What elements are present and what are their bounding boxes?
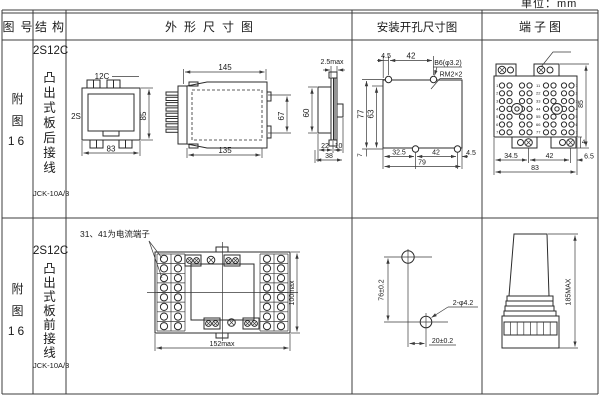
row1-model: 2S12C [33, 45, 66, 57]
dim-label-60: 60 [302, 108, 311, 117]
dim-label-100max: 100max [289, 280, 296, 305]
dim-label-185max: 185MAX [566, 278, 573, 305]
dim-label-42-bottom: 42 [432, 150, 440, 157]
dim-label-2-5max: 2.5max [321, 59, 344, 66]
row1-terminal-diagram: 1 2 3 4 5 6 7 11 22 33 44 55 66 77 1 2 3… [494, 52, 594, 175]
dim-label-32-5: 32.5 [392, 150, 406, 157]
term-num: 11 [536, 83, 541, 88]
row2-mounting-hole-drawing: 76±0.2 20±0.2 2-φ4.2 [379, 249, 479, 347]
term-num: 22 [536, 91, 541, 96]
dim-label-67: 67 [277, 111, 286, 120]
dim-label-22: 22 [321, 143, 329, 150]
label-2s: 2S [71, 112, 81, 121]
dim-label-77: 77 [357, 109, 366, 118]
dim-label-83-term: 83 [531, 165, 539, 172]
dim-label-42-term: 42 [546, 153, 554, 160]
dim-label-63: 63 [367, 109, 376, 118]
callout-rm2: RM2×2 [440, 72, 463, 79]
dim-label-79: 79 [418, 160, 426, 167]
dim-label-4-5-bottom: 4.5 [466, 150, 476, 157]
term-num: 5 [575, 114, 578, 119]
dim-label-38: 38 [325, 153, 333, 160]
row2-fig-char-1: 附 [4, 280, 31, 297]
term-num: 1 [575, 83, 578, 88]
row2-structure-desc: 凸出式板前接线 [41, 262, 58, 360]
row1-fig-char-2: 图 [4, 112, 31, 129]
dim-label-42-top: 42 [407, 52, 416, 61]
term-num: 33 [536, 99, 541, 104]
term-num: 7 [575, 130, 578, 135]
row2-type-code: JCK-10A/3 [33, 361, 66, 370]
dim-label-4-term: 4 [582, 140, 586, 146]
term-num: 7 [496, 130, 499, 135]
dim-label-83: 83 [107, 145, 116, 154]
dim-label-34-5: 34.5 [504, 153, 518, 160]
callout-2-phi4-2: 2-φ4.2 [453, 300, 474, 307]
row2-side-profile-drawing: 185MAX [502, 234, 578, 348]
row1-type-code: JCK-10A/3 [33, 189, 66, 198]
term-num: 2 [575, 91, 578, 96]
row1-structure-desc: 凸出式板后接线 [41, 71, 58, 176]
header-mounting-dims: 安装开孔尺寸图 [352, 13, 482, 40]
dim-label-10: 10 [335, 143, 343, 150]
row2-front-wiring-drawing: 152max 100max [147, 241, 300, 351]
term-num: 6 [496, 122, 499, 127]
unit-label: 单位：mm [521, 0, 577, 11]
dim-label-135: 135 [218, 146, 232, 155]
term-num: 2 [496, 91, 499, 96]
row1-mounting-hole-drawing: 4.5 42 B6(φ3.2) RM2×2 77 63 7 32.5 42 4.… [357, 52, 476, 170]
row2-current-terminal-note: 31、41为电流端子 [80, 228, 150, 240]
header-outline-dims: 外形尺寸图 [66, 13, 352, 40]
row1-front-view-drawing: 12C 2S 85 83 [71, 72, 153, 156]
term-num: 5 [496, 114, 499, 119]
term-num: 1 [496, 83, 499, 88]
dim-label-6-5: 6.5 [584, 154, 594, 161]
dim-label-12c: 12C [95, 72, 110, 81]
dim-label-20: 20±0.2 [432, 338, 453, 345]
dim-label-152max: 152max [210, 341, 235, 348]
term-num: 55 [536, 114, 541, 119]
dim-label-76: 76±0.2 [379, 279, 386, 300]
header-structure: 结构 [33, 13, 66, 40]
row1-fig-number: 16 [4, 134, 31, 148]
header-fig-no: 图号 [2, 13, 33, 40]
row1-fig-char-1: 附 [4, 90, 31, 107]
dim-label-145: 145 [218, 63, 232, 72]
row2-fig-char-2: 图 [4, 302, 31, 319]
header-terminal-diagram: 端子图 [482, 13, 598, 40]
row2-model: 2S12C [33, 245, 66, 257]
technical-drawing-canvas: 12C 2S 85 83 145 135 67 [0, 0, 600, 400]
manual-page: 12C 2S 85 83 145 135 67 [0, 0, 600, 400]
callout-b6: B6(φ3.2) [434, 60, 462, 67]
term-num: 6 [575, 122, 578, 127]
term-num: 4 [496, 106, 499, 111]
term-num: 44 [536, 106, 541, 111]
term-num: 77 [536, 130, 541, 135]
term-num: 66 [536, 122, 541, 127]
dim-label-85-term: 85 [578, 100, 585, 108]
term-num: 3 [496, 99, 499, 104]
row1-side-view-drawing: 145 135 67 [166, 63, 291, 158]
dim-label-85: 85 [139, 111, 148, 120]
dim-label-4-5-top: 4.5 [381, 53, 391, 60]
row1-panel-profile-drawing: 2.5max 60 22 10 38 [302, 59, 345, 163]
row2-fig-number: 16 [4, 324, 31, 338]
dim-label-7: 7 [357, 153, 364, 157]
